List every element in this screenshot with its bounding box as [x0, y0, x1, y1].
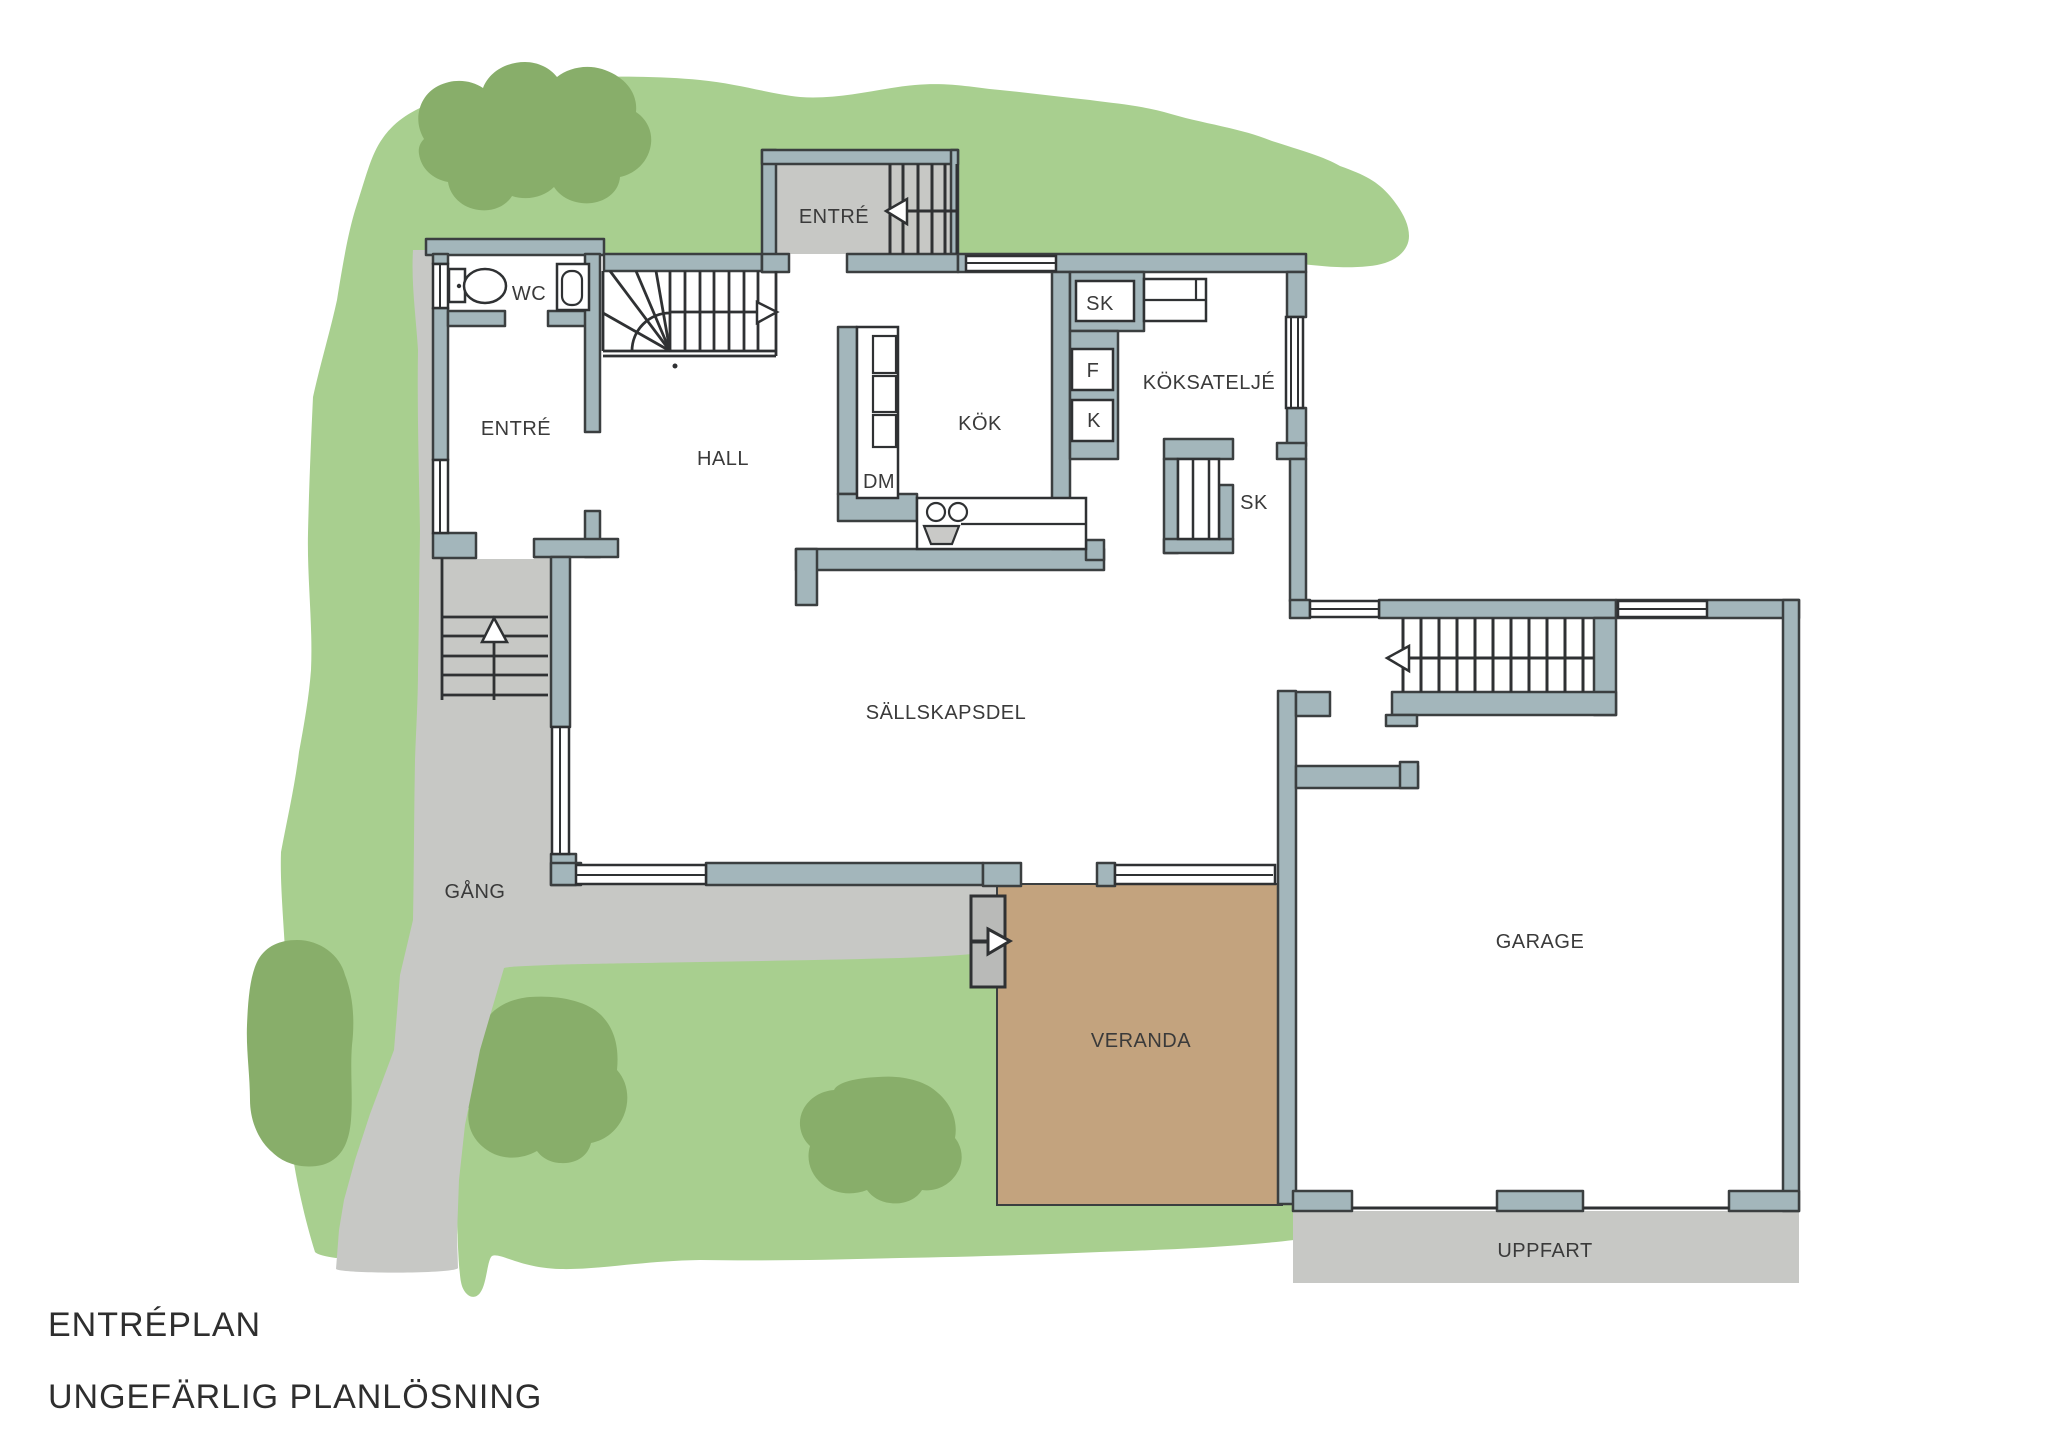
svg-text:UPPFART: UPPFART: [1497, 1240, 1592, 1262]
svg-text:UNGEFÄRLIG PLANLÖSNING: UNGEFÄRLIG PLANLÖSNING: [48, 1378, 542, 1416]
svg-text:GÅNG: GÅNG: [445, 880, 506, 903]
svg-text:SK: SK: [1240, 492, 1268, 514]
svg-text:DM: DM: [863, 471, 895, 493]
svg-text:K: K: [1087, 410, 1101, 432]
svg-text:KÖKSATELJÉ: KÖKSATELJÉ: [1143, 371, 1275, 394]
svg-text:ENTRÉ: ENTRÉ: [481, 417, 551, 440]
svg-text:VERANDA: VERANDA: [1091, 1030, 1191, 1052]
svg-text:HALL: HALL: [697, 448, 749, 470]
svg-text:F: F: [1087, 360, 1100, 382]
svg-text:SÄLLSKAPSDEL: SÄLLSKAPSDEL: [866, 702, 1027, 724]
svg-text:ENTRÉPLAN: ENTRÉPLAN: [48, 1306, 261, 1344]
svg-text:ENTRÉ: ENTRÉ: [799, 205, 869, 228]
svg-text:KÖK: KÖK: [958, 413, 1002, 435]
svg-text:GARAGE: GARAGE: [1496, 931, 1585, 953]
svg-text:WC: WC: [512, 283, 546, 305]
svg-text:SK: SK: [1086, 293, 1114, 315]
